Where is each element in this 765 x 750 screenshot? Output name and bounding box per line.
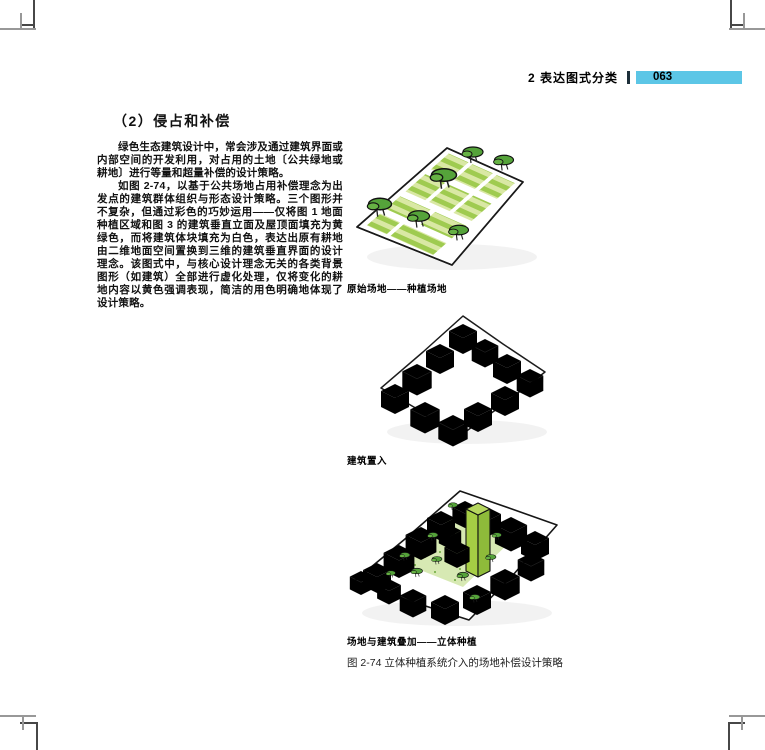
figure-2-caption: 建筑置入 xyxy=(347,453,387,467)
section-heading: （2）侵占和补偿 xyxy=(113,111,231,131)
figure-building-insertion-sketch xyxy=(375,310,565,452)
paragraph: 如图 2-74，以基于公共场地占用补偿理念为出发点的建筑群体组织与形态设计策略。… xyxy=(97,180,343,310)
green-tower xyxy=(466,503,490,577)
page-number: 063 xyxy=(653,71,672,83)
figure-1-caption: 原始场地——种植场地 xyxy=(347,281,447,295)
tree-icon xyxy=(494,155,514,170)
paragraph: 绿色生态建筑设计中，常会涉及通过建筑界面或内部空间的开发利用，对占用的土地〔公共… xyxy=(97,141,343,180)
header-separator xyxy=(627,71,630,84)
figure-caption: 图 2-74 立体种植系统介入的场地补偿设计策略 xyxy=(347,655,563,670)
page-header: 2 表达图式分类 063 xyxy=(528,70,742,84)
page-number-badge: 063 xyxy=(636,71,742,84)
chapter-title: 2 表达图式分类 xyxy=(528,69,618,86)
figure-original-site-sketch xyxy=(340,135,570,278)
figure-3-caption: 场地与建筑叠加——立体种植 xyxy=(347,634,477,648)
figure-vertical-planting-sketch xyxy=(345,477,570,633)
book-page: { "page": { "header": { "chapter": "2 表达… xyxy=(0,0,765,750)
body-text: 绿色生态建筑设计中，常会涉及通过建筑界面或内部空间的开发利用，对占用的土地〔公共… xyxy=(97,141,343,310)
